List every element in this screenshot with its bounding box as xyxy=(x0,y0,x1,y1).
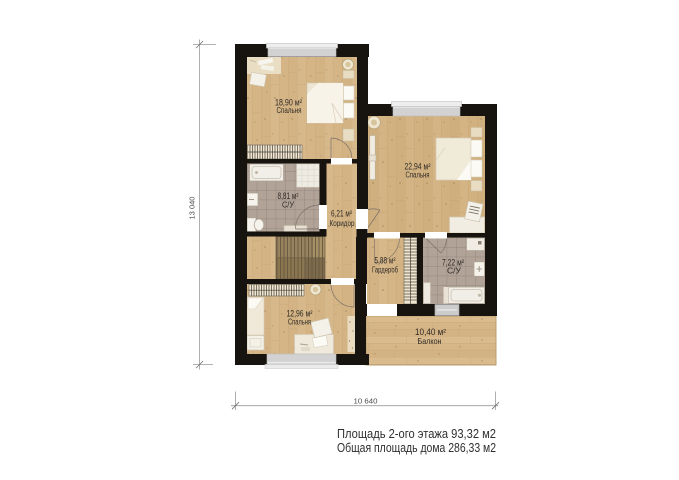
svg-text:10 640: 10 640 xyxy=(354,396,378,405)
svg-text:8,81 м²: 8,81 м² xyxy=(278,191,299,201)
svg-text:С/У: С/У xyxy=(282,201,295,210)
svg-text:6,21 м²: 6,21 м² xyxy=(331,209,352,219)
svg-text:10,40 м²: 10,40 м² xyxy=(415,327,446,337)
svg-text:Спальня: Спальня xyxy=(406,171,430,180)
svg-text:Спальня: Спальня xyxy=(288,318,311,327)
svg-text:Коридор: Коридор xyxy=(330,219,355,228)
svg-text:13 040: 13 040 xyxy=(188,197,197,220)
svg-text:С/У: С/У xyxy=(447,267,462,276)
svg-text:Гардероб: Гардероб xyxy=(372,266,398,275)
svg-text:Спальня: Спальня xyxy=(277,106,302,115)
svg-text:5,88 м²: 5,88 м² xyxy=(375,256,396,266)
svg-text:Балкон: Балкон xyxy=(418,337,442,346)
svg-text:Общая площадь дома 286,33 м2: Общая площадь дома 286,33 м2 xyxy=(337,440,496,455)
svg-text:Площадь 2-ого этажа 93,32 м2: Площадь 2-ого этажа 93,32 м2 xyxy=(337,426,496,441)
